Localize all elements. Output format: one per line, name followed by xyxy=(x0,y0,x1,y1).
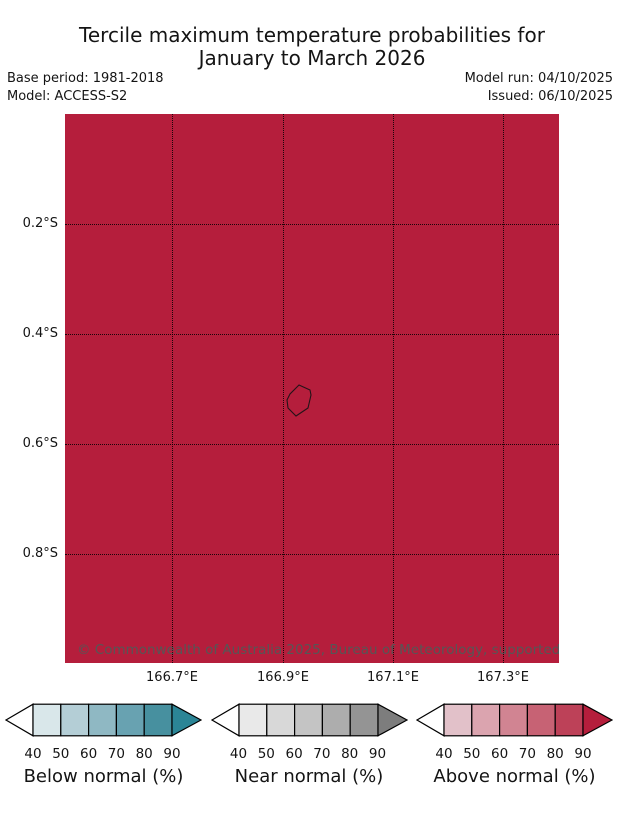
forecast-map: © Commonwealth of Australia 2025, Bureau… xyxy=(65,114,559,663)
colorbar-below-normal: 405060708090Below normal (%) xyxy=(5,703,202,787)
colorbar-gradient xyxy=(5,703,202,737)
colorbar-tick-label: 60 xyxy=(491,746,508,762)
model-label: Model: ACCESS-S2 xyxy=(7,88,164,106)
colorbar-tick-label: 80 xyxy=(136,746,153,762)
colorbar-near-normal: 405060708090Near normal (%) xyxy=(211,703,408,787)
colorbar-tick-label: 70 xyxy=(519,746,536,762)
figure-title-line2: January to March 2026 xyxy=(65,47,559,70)
colorbar-gradient xyxy=(211,703,408,737)
y-tick-label: 0.4°S xyxy=(0,326,58,342)
colorbar-tick-label: 50 xyxy=(463,746,480,762)
colorbar-tick-row: 405060708090 xyxy=(211,746,408,763)
figure-title-line1: Tercile maximum temperature probabilitie… xyxy=(65,24,559,47)
colorbar-tick-label: 70 xyxy=(313,746,330,762)
colorbar-above-normal: 405060708090Above normal (%) xyxy=(416,703,613,787)
colorbar-tick-label: 40 xyxy=(24,746,41,762)
colorbar-tick-label: 80 xyxy=(547,746,564,762)
x-tick-label: 167.1°E xyxy=(367,670,419,685)
y-tick-label: 0.6°S xyxy=(0,436,58,452)
x-tick-label: 167.3°E xyxy=(477,670,529,685)
x-tick-label: 166.7°E xyxy=(146,670,198,685)
colorbar-tick-label: 90 xyxy=(574,746,591,762)
colorbar-tick-label: 40 xyxy=(435,746,452,762)
y-tick-label: 0.8°S xyxy=(0,546,58,562)
model-run-label: Model run: 04/10/2025 xyxy=(465,70,613,88)
colorbar-tick-label: 50 xyxy=(52,746,69,762)
colorbar-caption: Above normal (%) xyxy=(416,766,613,787)
figure-title: Tercile maximum temperature probabilitie… xyxy=(65,24,559,70)
colorbar-gradient xyxy=(416,703,613,737)
colorbar-tick-label: 60 xyxy=(286,746,303,762)
colorbar-caption: Near normal (%) xyxy=(211,766,408,787)
colorbar-tick-label: 50 xyxy=(258,746,275,762)
issued-label: Issued: 06/10/2025 xyxy=(465,88,613,106)
colorbar-caption: Below normal (%) xyxy=(5,766,202,787)
copyright-notice: © Commonwealth of Australia 2025, Bureau… xyxy=(77,642,559,658)
y-tick-label: 0.2°S xyxy=(0,216,58,232)
colorbar-tick-label: 60 xyxy=(80,746,97,762)
base-period-label: Base period: 1981-2018 xyxy=(7,70,164,88)
meta-left: Base period: 1981-2018 Model: ACCESS-S2 xyxy=(7,70,164,105)
colorbar-tick-label: 40 xyxy=(230,746,247,762)
colorbar-tick-row: 405060708090 xyxy=(5,746,202,763)
island-outline xyxy=(65,114,559,663)
colorbar-tick-label: 80 xyxy=(341,746,358,762)
x-tick-label: 166.9°E xyxy=(257,670,309,685)
colorbar-tick-row: 405060708090 xyxy=(416,746,613,763)
colorbar-tick-label: 90 xyxy=(163,746,180,762)
colorbar-tick-label: 70 xyxy=(108,746,125,762)
colorbar-tick-label: 90 xyxy=(369,746,386,762)
meta-right: Model run: 04/10/2025 Issued: 06/10/2025 xyxy=(465,70,613,105)
